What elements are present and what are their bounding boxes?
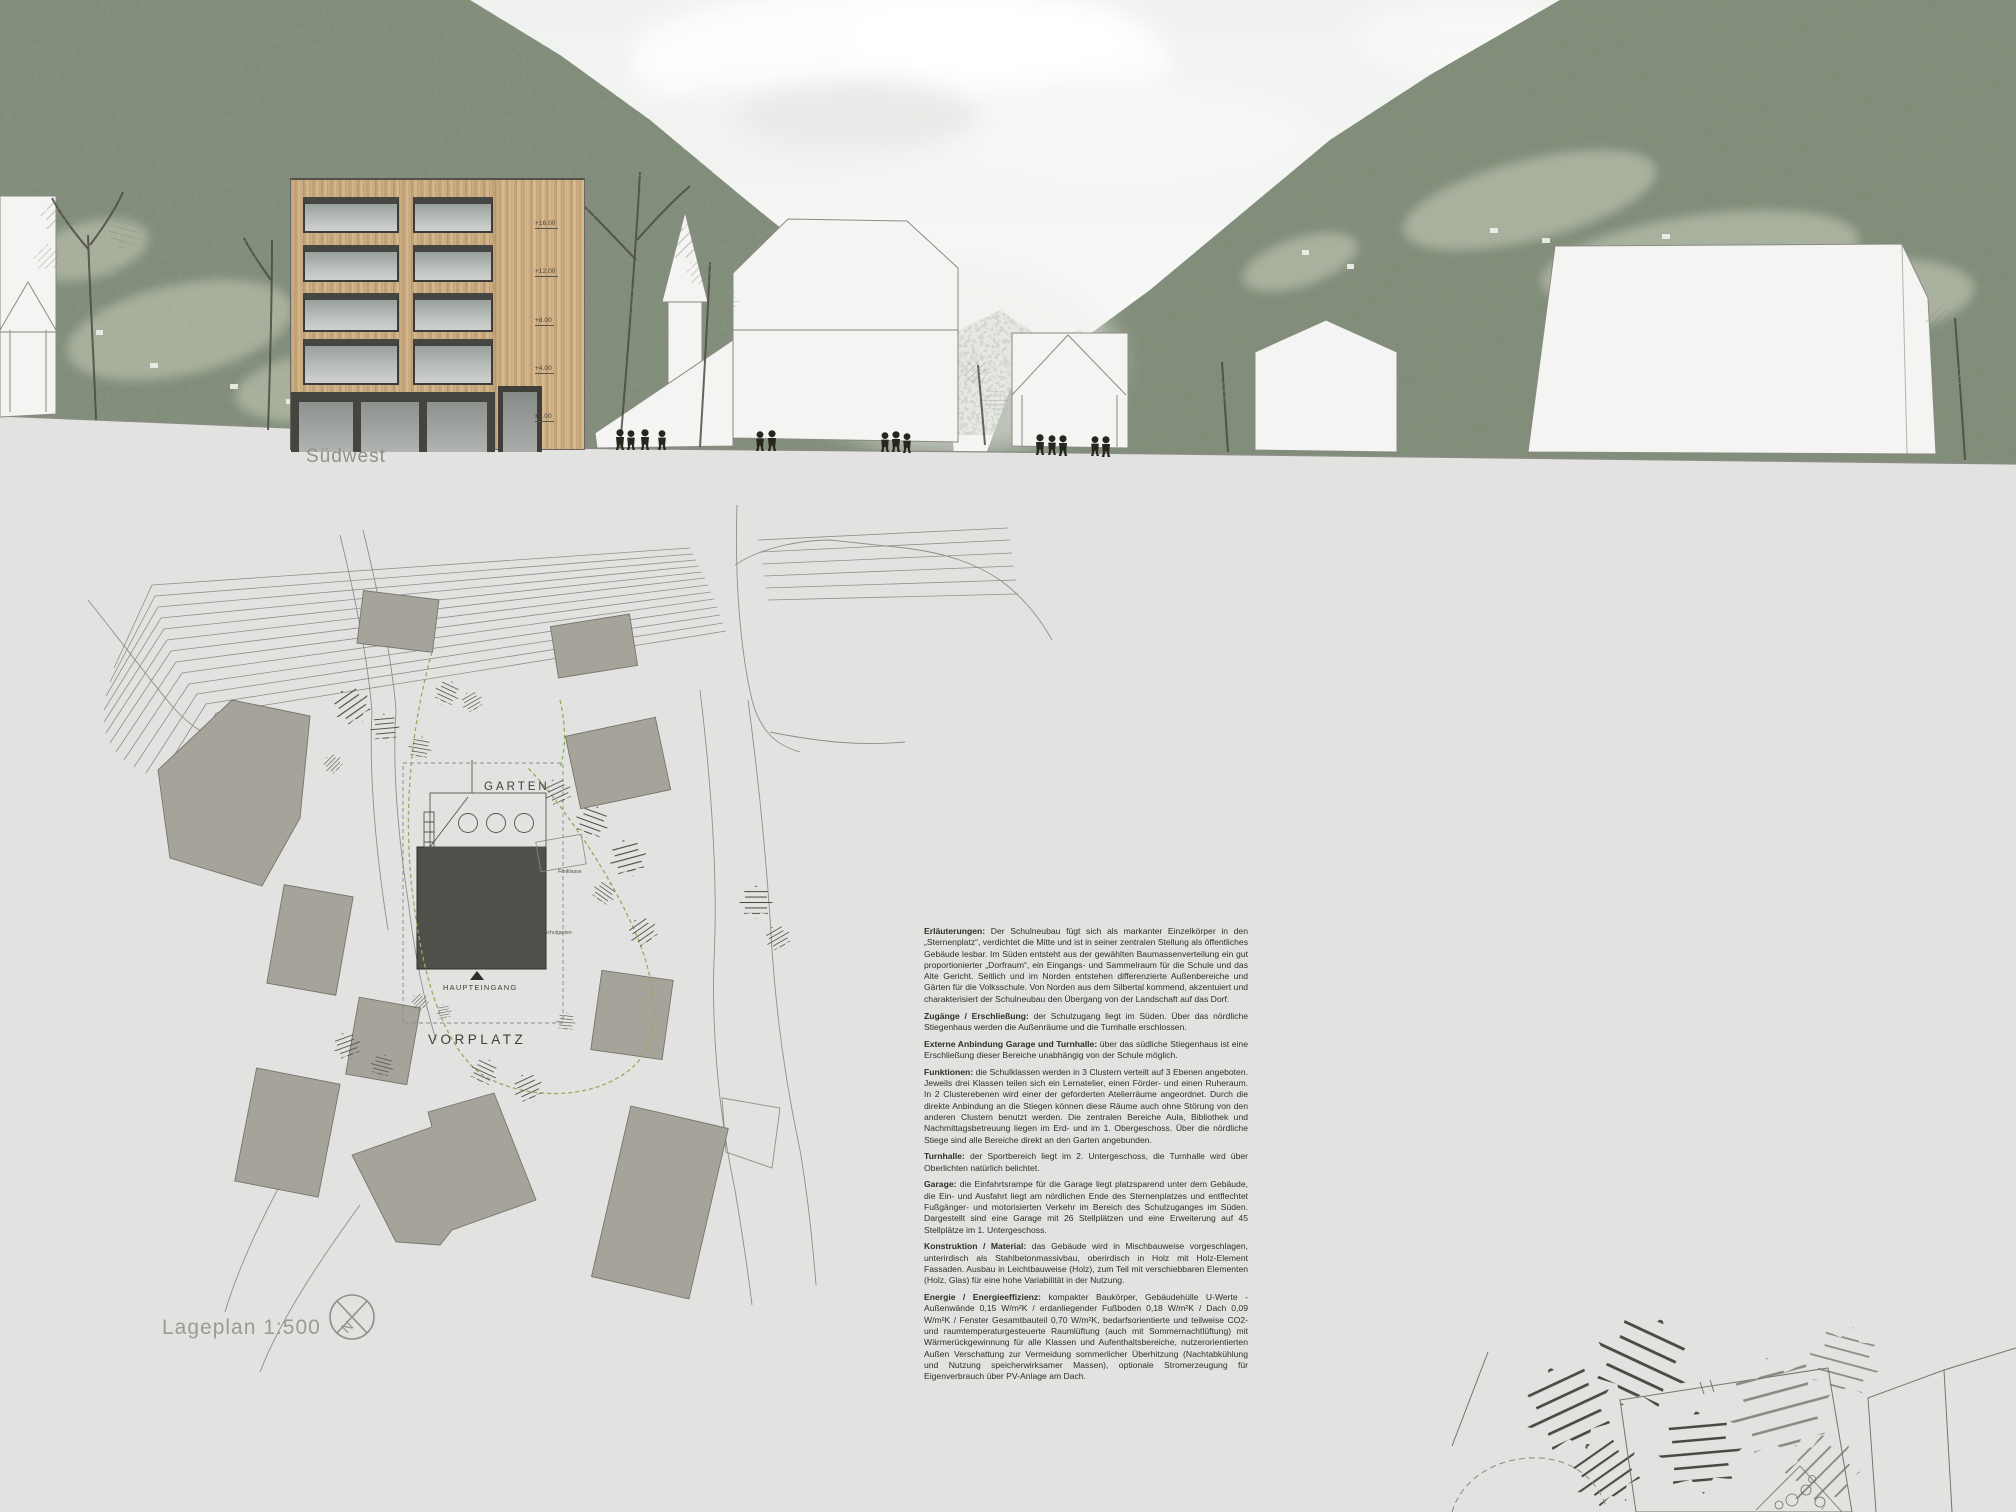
presentation-board: GARTEN VORPLATZ HAUPTEINGANG Freiklasse … — [0, 0, 2016, 1512]
ribbon-window — [413, 245, 493, 282]
label-garten: GARTEN — [484, 781, 550, 793]
ribbon-window — [303, 197, 399, 233]
ribbon-window — [303, 293, 399, 332]
ribbon-window — [303, 245, 399, 282]
elevation-caption: Südwest — [306, 446, 386, 468]
level-marker: +12.00 — [535, 268, 558, 277]
ribbon-window — [413, 197, 493, 233]
label-schulgarten: Schulgarten — [544, 930, 572, 936]
level-marker: ±0.00 — [535, 413, 554, 422]
label-freiklasse: Freiklasse — [558, 869, 582, 875]
label-haupteingang: HAUPTEINGANG — [443, 983, 517, 992]
ground-floor-glazing — [291, 392, 495, 452]
level-marker: +4.00 — [535, 365, 554, 374]
ribbon-window — [413, 339, 493, 385]
ribbon-window — [303, 339, 399, 385]
label-vorplatz: VORPLATZ — [428, 1032, 526, 1047]
level-marker: +16.00 — [535, 220, 558, 229]
plan-caption: Lageplan 1:500 — [162, 1316, 321, 1340]
ribbon-window — [413, 293, 493, 332]
level-marker: +8.00 — [535, 317, 554, 326]
level-markers: +16.00+12.00+8.00+4.00±0.00 — [535, 180, 585, 449]
project-description: Erläuterungen: Der Schulneubau fügt sich… — [924, 926, 1248, 1388]
school-elevation: +16.00+12.00+8.00+4.00±0.00 — [290, 178, 585, 450]
